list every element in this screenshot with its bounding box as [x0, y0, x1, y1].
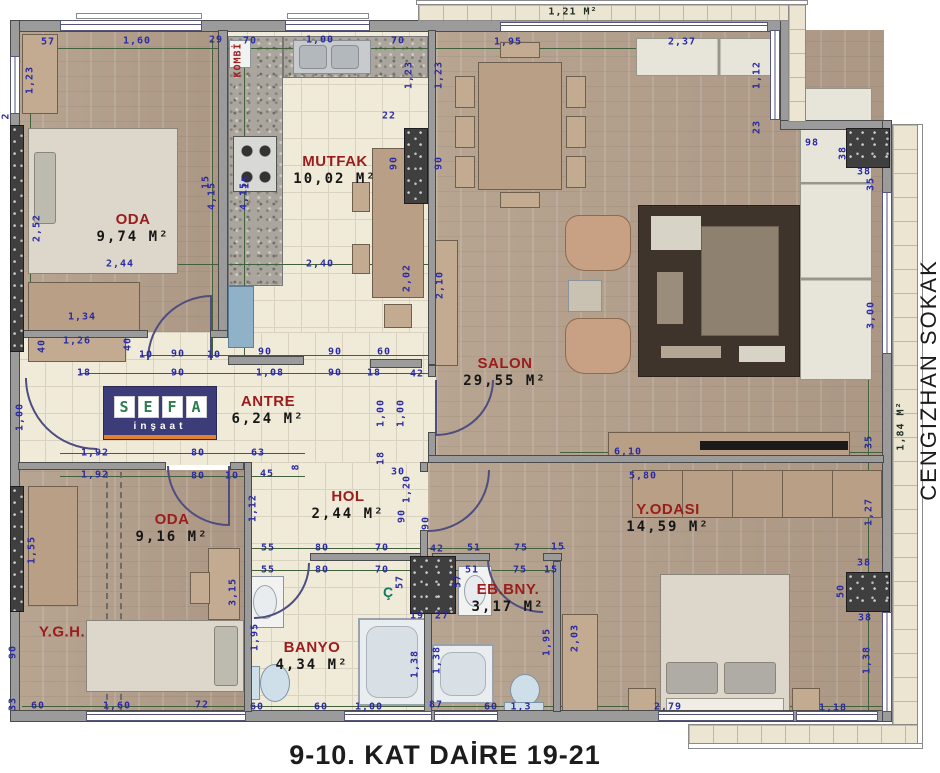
dimension-label: 1,00	[396, 399, 407, 427]
dimension-label: 8	[291, 463, 302, 470]
dimension-label: 1,18	[819, 703, 847, 714]
dimension-label: 38	[857, 167, 871, 178]
dimension-label: 38	[857, 558, 871, 569]
dimension-label: 1,3	[510, 702, 531, 713]
dimension-label: 27	[435, 611, 449, 622]
dimension-label: 19	[410, 611, 424, 622]
dimension-label: 1,95	[494, 37, 522, 48]
dimension-label: 3,15	[228, 578, 239, 606]
dimension-label: 90	[258, 347, 272, 358]
dimension-label: 60	[31, 701, 45, 712]
dimension-label: 1,00	[15, 403, 26, 431]
dimension-label: 2,10	[435, 271, 446, 299]
dimension-label: 1,23	[434, 61, 445, 89]
dimension-label: 72	[195, 700, 209, 711]
dimension-label: 2	[1, 112, 12, 119]
dimension-label: 1,23	[25, 66, 36, 94]
dimension-label: 10	[139, 350, 153, 361]
dimension-label: 57	[41, 37, 55, 48]
dimension-label: 70	[375, 565, 389, 576]
dimension-label: 50	[836, 584, 847, 598]
dimension-label: 15	[241, 175, 252, 189]
dimension-label: 35	[864, 435, 875, 449]
dimension-label: 40	[37, 339, 48, 353]
dimension-label: 1,92	[81, 448, 109, 459]
dimension-label: 51	[465, 565, 479, 576]
dimension-label: 1,20	[402, 475, 413, 503]
dimension-label: 90	[171, 368, 185, 379]
dimension-label: 63	[251, 448, 265, 459]
dimension-label: 90	[8, 645, 19, 659]
dimension-label: 2,79	[654, 702, 682, 713]
dimension-label: 1,38	[410, 650, 421, 678]
dimension-label: 33	[8, 697, 19, 711]
dimension-label: 18	[376, 451, 387, 465]
dimension-label: 55	[261, 565, 275, 576]
dimension-label: 60	[250, 702, 264, 713]
dimension-label: 2,40	[306, 259, 334, 270]
dimension-label: 2,03	[570, 624, 581, 652]
dimension-label: 60	[314, 702, 328, 713]
dimension-label: 2,37	[668, 37, 696, 48]
dimension-labels-layer: 571,6029701,00701,952,371,2322,521,001,5…	[0, 0, 940, 773]
dimension-label: 70	[391, 36, 405, 47]
dimension-label: 45	[260, 469, 274, 480]
dimension-label: 60	[377, 347, 391, 358]
dimension-label: 18	[77, 368, 91, 379]
dimension-label: 1,34	[68, 312, 96, 323]
dimension-label: 90	[328, 347, 342, 358]
dimension-label: 1,00	[376, 399, 387, 427]
dimension-label: 1,92	[81, 470, 109, 481]
dimension-label: 1,55	[27, 536, 38, 564]
dimension-label: 55	[261, 543, 275, 554]
dimension-label: 23	[752, 120, 763, 134]
dimension-label: 18	[367, 368, 381, 379]
dimension-label: 1,12	[248, 494, 259, 522]
dimension-label: 5,80	[629, 471, 657, 482]
dimension-label: 57	[395, 575, 406, 589]
dimension-label: 90	[397, 509, 408, 523]
dimension-label: 22	[382, 111, 396, 122]
dimension-label: 57	[453, 574, 464, 588]
dimension-label: 80	[191, 471, 205, 482]
dimension-label: 2,52	[32, 214, 43, 242]
dimension-label: 1,60	[103, 701, 131, 712]
dimension-label: 90	[328, 368, 342, 379]
dimension-label: 70	[375, 543, 389, 554]
dimension-label: 1,95	[250, 623, 261, 651]
dimension-label: 90	[421, 516, 432, 530]
dimension-label: 1,38	[432, 646, 443, 674]
dimension-label: 80	[315, 565, 329, 576]
dimension-label: 75	[513, 565, 527, 576]
dimension-label: 1,00	[306, 35, 334, 46]
dimension-label: 1,26	[63, 336, 91, 347]
dimension-label: 98	[805, 138, 819, 149]
dimension-label: 70	[243, 36, 257, 47]
dimension-label: 1,12	[752, 61, 763, 89]
dimension-label: 1,60	[123, 36, 151, 47]
dimension-label: 38	[838, 146, 849, 160]
dimension-label: 90	[389, 156, 400, 170]
floor-plan-canvas: 1,21 M² 1,84 M² KOMBİ Ç 9-10. KAT DAİRE …	[0, 0, 940, 773]
dimension-label: 80	[315, 543, 329, 554]
dimension-label: 80	[191, 448, 205, 459]
dimension-label: 10	[207, 350, 221, 361]
dimension-label: 3,00	[866, 301, 877, 329]
dimension-label: 75	[514, 543, 528, 554]
dimension-label: 40	[123, 337, 134, 351]
dimension-label: 10	[225, 471, 239, 482]
dimension-label: 42	[430, 544, 444, 555]
dimension-label: 1,38	[862, 646, 873, 674]
dimension-label: 1,00	[355, 702, 383, 713]
dimension-label: 29	[209, 35, 223, 46]
dimension-label: 15	[551, 542, 565, 553]
dimension-label: 2,02	[402, 264, 413, 292]
dimension-label: 1,27	[864, 498, 875, 526]
dimension-label: 1,08	[256, 368, 284, 379]
dimension-label: 51	[467, 543, 481, 554]
dimension-label: 60	[484, 702, 498, 713]
dimension-label: 42	[410, 369, 424, 380]
dimension-label: 15	[544, 565, 558, 576]
dimension-label: 87	[429, 700, 443, 711]
dimension-label: 38	[858, 613, 872, 624]
dimension-label: 35	[866, 177, 877, 191]
dimension-label: 2,44	[106, 259, 134, 270]
dimension-label: 1,23	[404, 61, 415, 89]
dimension-label: 90	[171, 349, 185, 360]
dimension-label: 15	[201, 175, 212, 189]
dimension-label: 90	[434, 156, 445, 170]
dimension-label: 6,10	[614, 447, 642, 458]
dimension-label: 1,95	[542, 628, 553, 656]
